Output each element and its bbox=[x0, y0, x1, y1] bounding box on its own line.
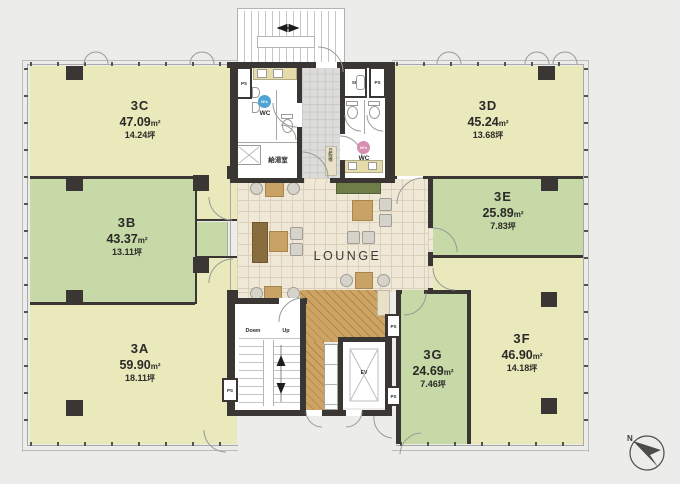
door-gap bbox=[340, 134, 345, 160]
door-gap bbox=[428, 266, 433, 288]
wall bbox=[230, 178, 302, 183]
column bbox=[193, 257, 209, 273]
ps-label: PS bbox=[390, 324, 396, 329]
wall-3e-3f bbox=[430, 255, 583, 258]
window-ticks bbox=[24, 68, 28, 443]
wall-3d-3e bbox=[428, 176, 583, 179]
door-arc bbox=[374, 416, 392, 438]
window-ticks bbox=[400, 442, 580, 446]
shelf-strip bbox=[377, 290, 390, 316]
column bbox=[541, 292, 557, 307]
door-gap bbox=[279, 298, 301, 304]
table bbox=[252, 222, 268, 263]
unit-3b-extension bbox=[195, 222, 227, 258]
slop-sink-fixture bbox=[356, 75, 365, 90]
column bbox=[66, 176, 83, 191]
cabinets bbox=[324, 344, 338, 410]
pipe-shaft-box: PS bbox=[369, 67, 386, 98]
unit-3f-top bbox=[430, 258, 583, 292]
column bbox=[538, 66, 555, 80]
door-gap bbox=[397, 176, 423, 179]
ps-label: PS bbox=[374, 80, 380, 85]
window-ticks bbox=[30, 442, 235, 446]
chair bbox=[379, 198, 392, 211]
compass-north-label: N bbox=[627, 434, 633, 443]
sink bbox=[273, 69, 283, 78]
stall-partition bbox=[364, 100, 365, 134]
column bbox=[541, 176, 558, 191]
outer-line bbox=[588, 60, 589, 452]
wall-3c-3b bbox=[30, 176, 195, 179]
wall-3b-3a bbox=[30, 302, 195, 305]
mens-wc-label: WC bbox=[255, 110, 275, 117]
lounge-left-line bbox=[230, 178, 231, 302]
table bbox=[355, 272, 373, 289]
chair bbox=[250, 182, 263, 195]
door-gap bbox=[304, 178, 330, 183]
ps-label: PS bbox=[227, 388, 233, 393]
column bbox=[66, 290, 83, 305]
stair-stringer bbox=[263, 340, 274, 406]
lounge-label: LOUNGE bbox=[305, 249, 390, 263]
unit-label-3e: 3E 25.89m² 7.83坪 bbox=[440, 190, 566, 232]
chair bbox=[290, 227, 303, 240]
column bbox=[541, 398, 557, 414]
floor-plan: PS M's WC 給湯室 SK PS W's WC 自販機 PS PS PS … bbox=[0, 0, 680, 484]
wall bbox=[300, 298, 306, 412]
pipe-shaft-box: PS bbox=[222, 378, 238, 402]
stair-landing bbox=[257, 36, 315, 48]
wall bbox=[227, 166, 238, 179]
wall-ev-top bbox=[338, 337, 392, 342]
ps-label: PS bbox=[390, 394, 396, 399]
vending-label: 自販機 bbox=[328, 148, 333, 162]
chair bbox=[340, 274, 353, 287]
pipe-shaft-box: PS bbox=[236, 67, 252, 99]
mens-badge: M's bbox=[258, 95, 271, 108]
stair-down-label: Down bbox=[239, 328, 267, 334]
sink bbox=[348, 162, 357, 170]
chair bbox=[347, 231, 360, 244]
door-gap bbox=[297, 103, 302, 127]
unit-label-3g: 3G 24.69m² 7.46坪 bbox=[374, 348, 492, 390]
door-gap bbox=[316, 62, 337, 68]
chair bbox=[362, 231, 375, 244]
window-ticks bbox=[30, 62, 235, 66]
unit-label-3a: 3A 59.90m² 18.11坪 bbox=[75, 342, 205, 384]
outer-line bbox=[22, 450, 238, 451]
wall bbox=[195, 191, 197, 258]
wall bbox=[195, 273, 197, 304]
outer-line bbox=[392, 450, 589, 451]
kitchenette-label: 給湯室 bbox=[256, 154, 300, 164]
table bbox=[269, 231, 288, 252]
stair-up-label: Up bbox=[276, 328, 296, 334]
chair bbox=[290, 243, 303, 256]
outer-line bbox=[22, 60, 23, 452]
elevator-label: EV bbox=[352, 370, 376, 376]
stall-partition bbox=[276, 90, 277, 140]
womens-badge: W's bbox=[357, 141, 370, 154]
wall bbox=[385, 62, 395, 183]
door-gap bbox=[402, 290, 424, 294]
outer-line bbox=[392, 60, 589, 61]
ext-line bbox=[227, 222, 228, 258]
unit-label-3d: 3D 45.24m² 13.68坪 bbox=[423, 99, 553, 141]
toilet-bowl bbox=[369, 106, 380, 119]
door-gap bbox=[306, 410, 322, 416]
sink bbox=[368, 162, 377, 170]
partition bbox=[238, 142, 300, 143]
door-gap bbox=[428, 228, 433, 252]
chair bbox=[377, 274, 390, 287]
wall bbox=[195, 219, 237, 221]
column bbox=[66, 66, 83, 80]
toilet-bowl bbox=[282, 119, 293, 133]
door-gap bbox=[346, 410, 362, 416]
womens-wc-label: WC bbox=[354, 155, 374, 162]
chair bbox=[287, 182, 300, 195]
sink bbox=[257, 69, 267, 78]
toilet-bowl bbox=[347, 106, 358, 119]
compass-icon: N bbox=[627, 434, 664, 470]
wall bbox=[340, 178, 395, 183]
unit-label-3b: 3B 43.37m² 13.11坪 bbox=[62, 216, 192, 258]
window-ticks bbox=[584, 68, 588, 443]
table bbox=[352, 200, 373, 221]
chair bbox=[379, 214, 392, 227]
pipe-shaft-box: PS bbox=[386, 314, 401, 338]
column bbox=[66, 400, 83, 416]
unit-label-3c: 3C 47.09m² 14.24坪 bbox=[75, 99, 205, 141]
outer-line bbox=[22, 60, 238, 61]
wall-ev-left bbox=[338, 337, 343, 412]
column bbox=[193, 175, 209, 191]
ps-label: PS bbox=[241, 81, 247, 86]
